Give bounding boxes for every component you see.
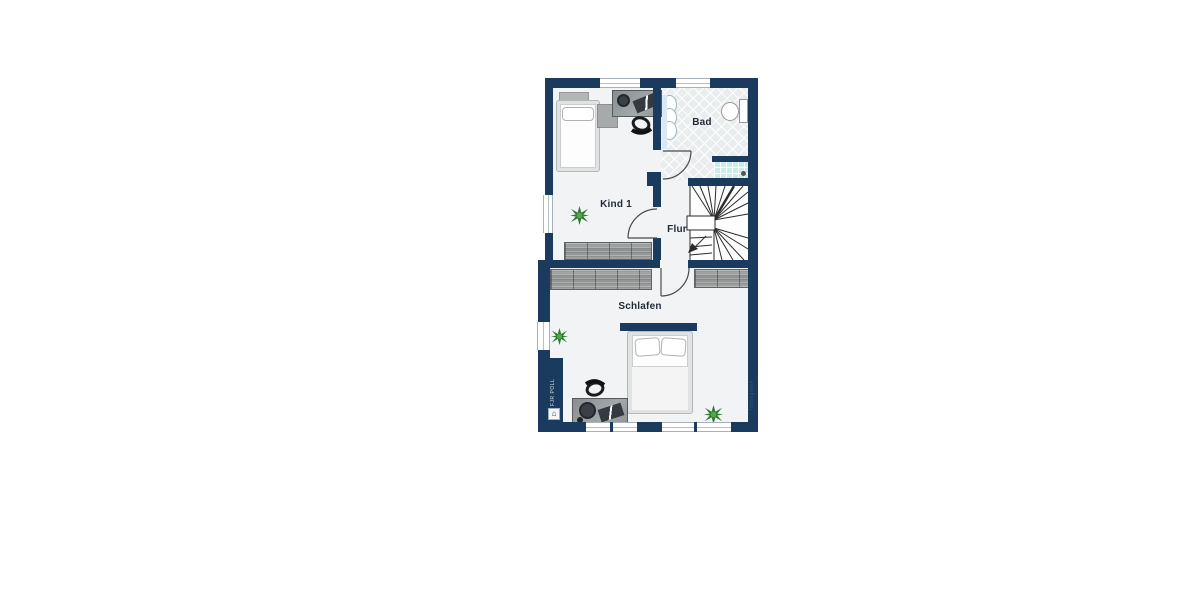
left-watermark-text: FJR POLL [551,374,556,406]
home-logo-icon: ⌂ [548,408,560,420]
room-label-bad: Bad [687,117,717,128]
room-label-kind1: Kind 1 [594,199,638,210]
right-watermark-text: Immografik [750,360,755,410]
doors-and-stairs-overlay [538,60,770,440]
room-label-schlafen: Schlafen [608,301,672,312]
room-label-flur: Flur [662,224,692,235]
floorplan-page: Bad Kind 1 Flur Schlafen FJR POLL ⌂ Immo… [0,0,1200,600]
